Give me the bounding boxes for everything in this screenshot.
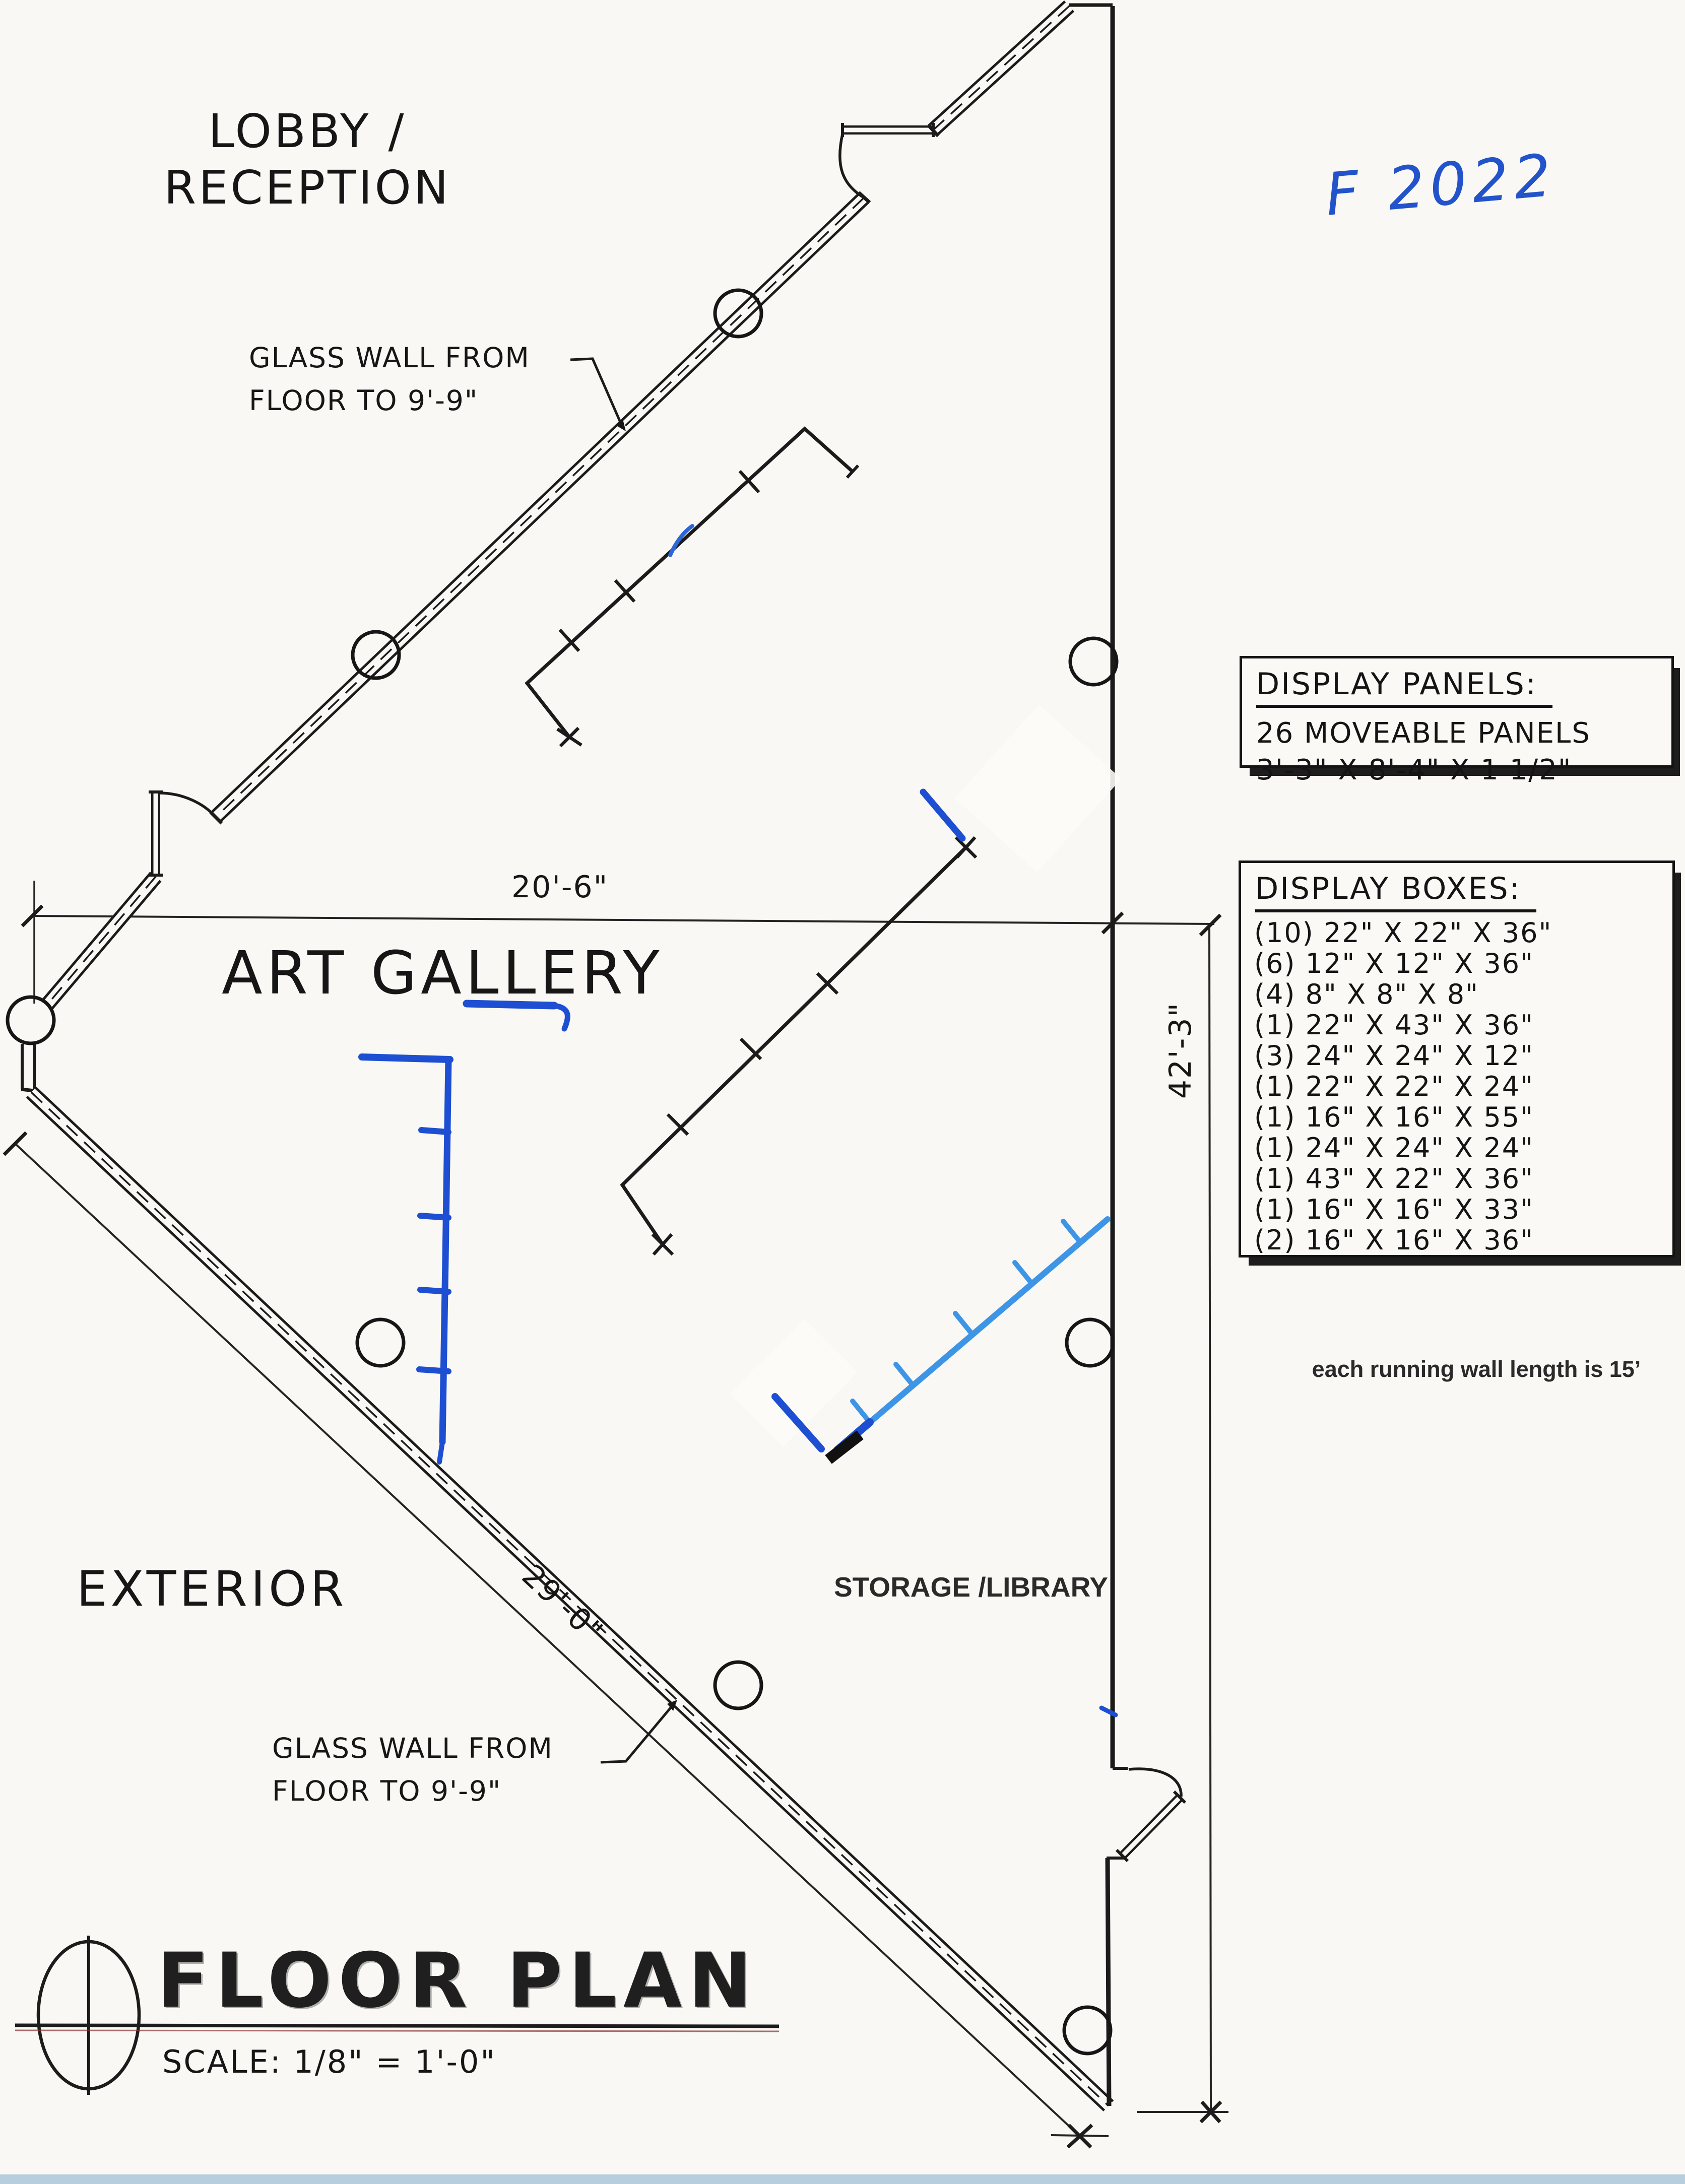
wall-left-short bbox=[21, 1044, 38, 1091]
pen-wall-blue-vertical bbox=[362, 1057, 450, 1462]
door-right bbox=[1117, 1792, 1185, 1861]
glass-note-upper-line2: FLOOR TO 9'-9" bbox=[249, 384, 478, 417]
display-panels-box: DISPLAY PANELS: 26 MOVEABLE PANELS 3'-3"… bbox=[1240, 656, 1674, 768]
display-wall-middle bbox=[622, 837, 976, 1254]
door-left bbox=[149, 792, 222, 875]
floor-plan-page: LOBBY /RECEPTION GLASS WALL FROMFLOOR TO… bbox=[0, 0, 1685, 2184]
room-label-storage-library: STORAGE /LIBRARY bbox=[834, 1571, 1108, 1603]
lobby-line1: LOBBY / bbox=[208, 104, 406, 158]
display-box-item: (1) 22" X 43" X 36" bbox=[1254, 1010, 1672, 1040]
pen-black-mark bbox=[828, 1435, 860, 1460]
scan-edge-artifact bbox=[0, 2174, 1685, 2184]
display-box-item: (4) 8" X 8" X 8" bbox=[1254, 979, 1672, 1010]
leader-upper-glass-note bbox=[570, 359, 626, 431]
leader-lower-glass-note bbox=[601, 1700, 677, 1762]
display-box-item: (1) 24" X 24" X 24" bbox=[1254, 1133, 1672, 1163]
column-circles bbox=[8, 290, 1117, 2054]
door-top bbox=[840, 123, 938, 203]
display-panels-count: 26 MOVEABLE PANELS bbox=[1256, 717, 1671, 750]
display-box-item: (3) 24" X 24" X 12" bbox=[1254, 1040, 1672, 1071]
dim-gallery-width: 20'-6" bbox=[511, 870, 608, 905]
lobby-line2: RECEPTION bbox=[164, 161, 450, 215]
glass-wall-note-lower: GLASS WALL FROMFLOOR TO 9'-9" bbox=[272, 1727, 553, 1813]
glass-note-lower-line1: GLASS WALL FROM bbox=[272, 1732, 553, 1764]
running-wall-note: each running wall length is 15’ bbox=[1270, 1356, 1683, 1382]
display-box-item: (1) 22" X 22" X 24" bbox=[1254, 1071, 1672, 1102]
drawing-title: FLOOR PLAN bbox=[157, 1937, 758, 2025]
dim-east-wall: 42'-3" bbox=[1163, 970, 1200, 1131]
display-box-item: (1) 43" X 22" X 36" bbox=[1254, 1163, 1672, 1194]
display-box-item: (6) 12" X 12" X 36" bbox=[1254, 948, 1672, 979]
glass-wall-note-upper: GLASS WALL FROMFLOOR TO 9'-9" bbox=[249, 337, 530, 423]
display-box-item: (1) 16" X 16" X 33" bbox=[1254, 1194, 1672, 1225]
room-label-lobby: LOBBY /RECEPTION bbox=[141, 103, 474, 216]
room-label-exterior: EXTERIOR bbox=[77, 1561, 347, 1617]
pen-marks-dark-blue bbox=[670, 526, 1116, 1715]
display-boxes-box: DISPLAY BOXES: (10) 22" X 22" X 36" (6) … bbox=[1239, 861, 1675, 1258]
drawing-scale: SCALE: 1/8" = 1'-0" bbox=[162, 2043, 496, 2080]
display-box-item: (2) 16" X 16" X 36" bbox=[1254, 1225, 1672, 1255]
glass-note-lower-line2: FLOOR TO 9'-9" bbox=[272, 1775, 501, 1807]
display-panels-size: 3'-3" X 8'-4" X 1 1/2" bbox=[1256, 754, 1671, 786]
display-panels-title: DISPLAY PANELS: bbox=[1256, 667, 1552, 708]
white-out-patch bbox=[730, 705, 1122, 1447]
display-box-item: (1) 16" X 16" X 55" bbox=[1254, 1102, 1672, 1133]
room-label-art-gallery: ART GALLERY bbox=[222, 938, 663, 1008]
display-boxes-title: DISPLAY BOXES: bbox=[1255, 871, 1536, 912]
glass-note-upper-line1: GLASS WALL FROM bbox=[249, 342, 530, 374]
display-box-item: (10) 22" X 22" X 36" bbox=[1254, 917, 1672, 948]
